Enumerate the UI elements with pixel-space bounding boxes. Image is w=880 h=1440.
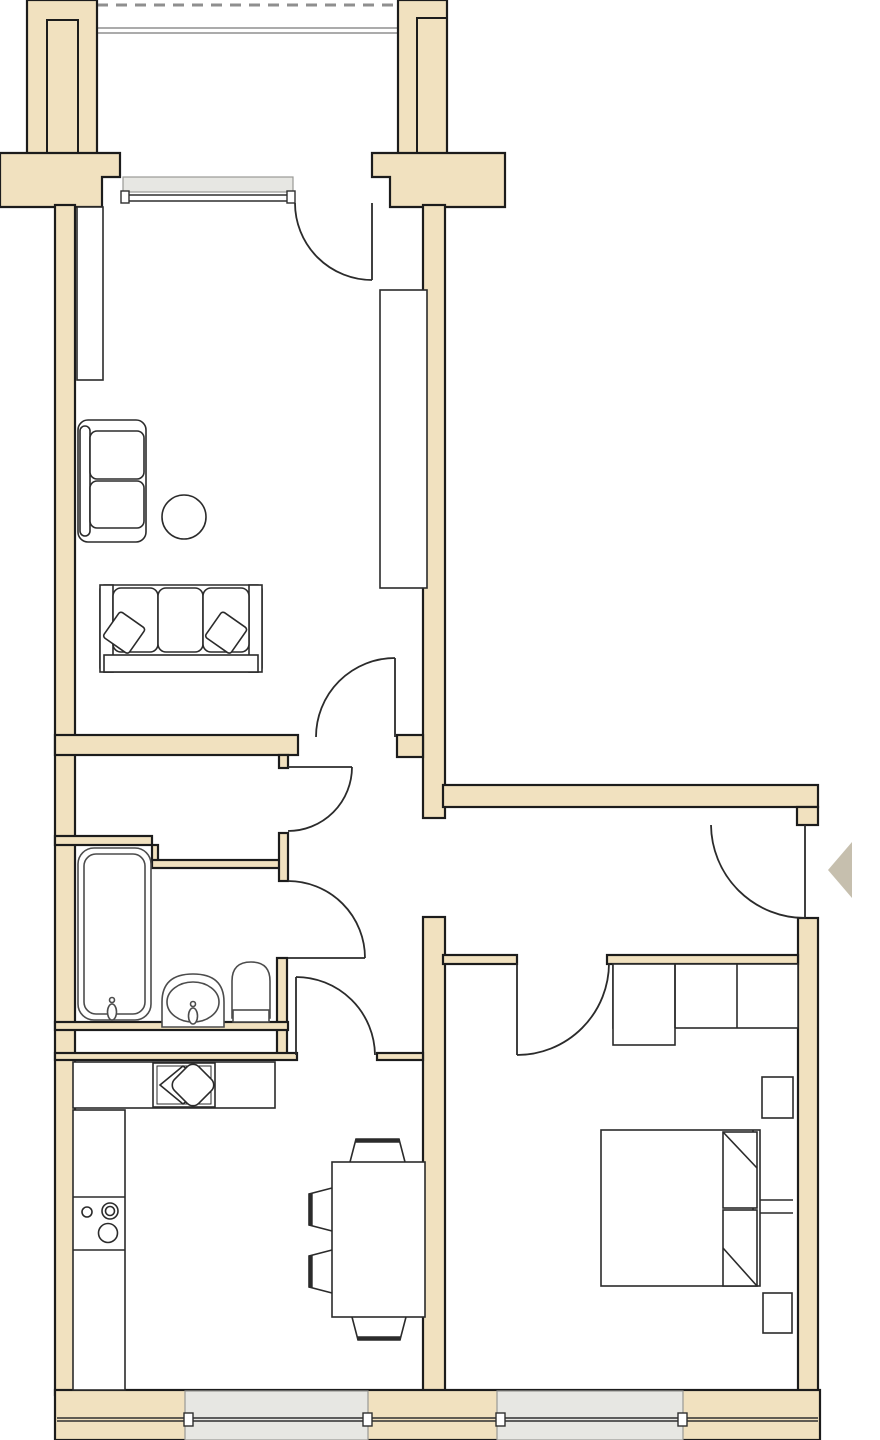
bathroom-fixtures: [78, 848, 270, 1027]
bedroom-furniture: [601, 964, 798, 1333]
window-frame-end: [287, 191, 295, 203]
loveseat-back: [80, 426, 90, 536]
bathtub-faucet-icon: [108, 1004, 117, 1020]
toilet-tank: [233, 1010, 269, 1022]
bedroom-door-arc: [517, 963, 609, 1055]
bathtub-icon: [78, 848, 151, 1020]
loveseat-icon: [78, 420, 146, 542]
bathroom-top-wall-right: [152, 860, 281, 868]
bedroom-window-recess: [497, 1391, 683, 1440]
entry-door-arc: [711, 825, 805, 918]
dining-set: [309, 1139, 425, 1340]
top-wall-left: [0, 153, 120, 207]
balcony: [95, 5, 397, 33]
entry-arrow: [828, 842, 852, 898]
nightstand-icon: [763, 1293, 792, 1333]
balcony-pier-right: [398, 0, 447, 155]
top-wall-right: [372, 153, 505, 207]
kitchen-top-wall-left: [55, 1053, 297, 1060]
kitchen-sink-unit-icon: [153, 1061, 217, 1109]
window-frame-end: [184, 1413, 193, 1426]
sofa-3seat-icon: [100, 585, 262, 672]
sofa-seat-base: [104, 655, 258, 672]
door-jamb-tab: [279, 755, 288, 768]
center-wall-lower: [423, 917, 445, 1392]
left-exterior-wall: [55, 205, 75, 1395]
floor-plan: [0, 0, 880, 1440]
window-frame-end: [496, 1413, 505, 1426]
floor-plan-drawing: [0, 0, 880, 1440]
loveseat-cushion: [90, 431, 144, 479]
window-frame-end: [121, 191, 129, 203]
balcony-door-arc: [295, 203, 372, 280]
kitchen-window-recess: [185, 1391, 368, 1440]
window-frame-end: [363, 1413, 372, 1426]
bedroom-top-wall-left: [443, 955, 517, 964]
doors: [288, 203, 805, 1055]
window-frame-end: [678, 1413, 687, 1426]
living-room-window-sill: [123, 177, 293, 192]
closet-deep-section: [613, 964, 675, 1045]
loveseat-cushion: [90, 481, 144, 528]
entry-door-jamb: [797, 807, 818, 825]
round-side-table-icon: [162, 495, 206, 539]
entry-top-wall: [443, 785, 818, 807]
nightstand-icon: [762, 1077, 793, 1118]
living-hall-wall: [55, 735, 298, 755]
basin-tap-icon: [189, 1008, 198, 1024]
kitchen-top-wall-right: [377, 1053, 423, 1060]
living-hall-wall-right: [397, 735, 423, 757]
bottom-exterior-wall: [55, 1390, 820, 1440]
bathroom-door-pier: [279, 833, 288, 881]
sofa-back-cushion: [158, 588, 203, 652]
tall-cabinet-icon: [77, 207, 103, 380]
closet-icon: [613, 964, 798, 1045]
balcony-pier-left: [27, 0, 97, 155]
right-exterior-wall: [798, 918, 818, 1440]
kitchen-furniture: [73, 1061, 275, 1390]
dining-table-icon: [332, 1162, 425, 1317]
bathroom-right-wall: [277, 958, 287, 1058]
basin-drain-icon: [191, 1002, 196, 1007]
hall-inner-door-arc: [288, 767, 352, 831]
bed-pillow: [723, 1210, 757, 1286]
bathtub-drain-icon: [110, 998, 115, 1003]
living-room-furniture: [77, 207, 427, 672]
bed-pillow: [723, 1132, 757, 1208]
double-bed-icon: [601, 1130, 793, 1286]
wall-details: [47, 18, 446, 153]
wardrobe-icon: [380, 290, 427, 588]
living-room-door-arc: [316, 658, 395, 737]
bathroom-top-wall-left: [55, 836, 152, 845]
bedroom-top-wall-right: [607, 955, 798, 964]
bathroom-door-arc: [288, 881, 365, 958]
kitchen-door-arc: [296, 977, 375, 1055]
